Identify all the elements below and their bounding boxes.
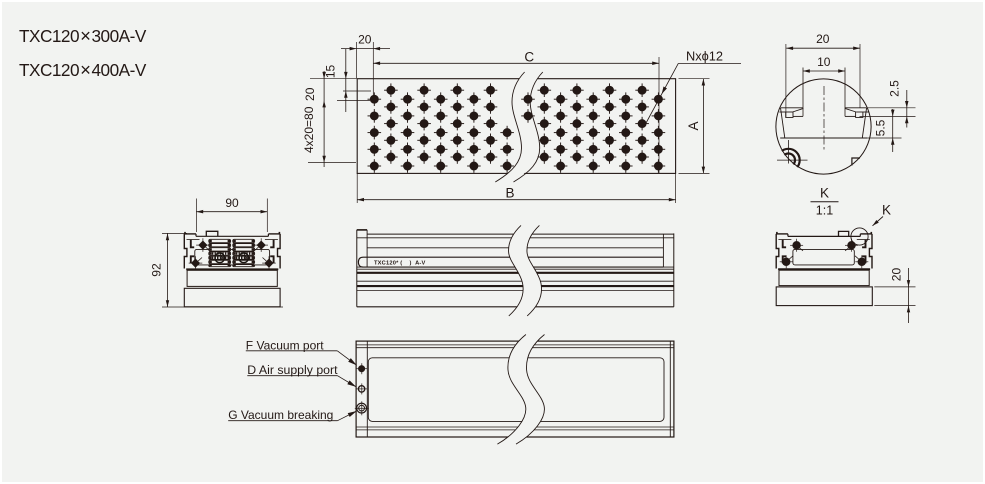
svg-text:K: K xyxy=(820,186,829,201)
svg-text:90: 90 xyxy=(225,196,239,210)
svg-text:TXC120 × 300A-V: TXC120 × 300A-V xyxy=(19,25,147,46)
svg-text:20: 20 xyxy=(303,87,317,101)
svg-text:20: 20 xyxy=(890,268,904,282)
svg-text:20: 20 xyxy=(816,32,830,46)
svg-text:Nxϕ12: Nxϕ12 xyxy=(686,49,723,64)
svg-text:1:1: 1:1 xyxy=(816,204,833,218)
svg-text:2.5: 2.5 xyxy=(888,80,902,97)
svg-text:K: K xyxy=(882,203,891,218)
svg-text:20: 20 xyxy=(358,33,372,47)
svg-text:A: A xyxy=(686,121,701,130)
svg-text:B: B xyxy=(505,185,514,200)
svg-text:4x20=80: 4x20=80 xyxy=(302,106,316,153)
svg-text:15: 15 xyxy=(324,65,338,79)
svg-text:TXC120* ( ) A-V: TXC120* ( ) A-V xyxy=(374,260,426,266)
svg-text:92: 92 xyxy=(149,263,163,277)
svg-text:5.5: 5.5 xyxy=(874,119,888,136)
svg-text:C: C xyxy=(524,49,534,64)
svg-text:G Vacuum breaking: G Vacuum breaking xyxy=(228,408,333,422)
svg-text:10: 10 xyxy=(817,55,831,69)
svg-text:D Air supply port: D Air supply port xyxy=(247,363,338,377)
svg-text:F Vacuum port: F Vacuum port xyxy=(246,338,324,352)
svg-text:TXC120 × 400A-V: TXC120 × 400A-V xyxy=(19,59,147,80)
